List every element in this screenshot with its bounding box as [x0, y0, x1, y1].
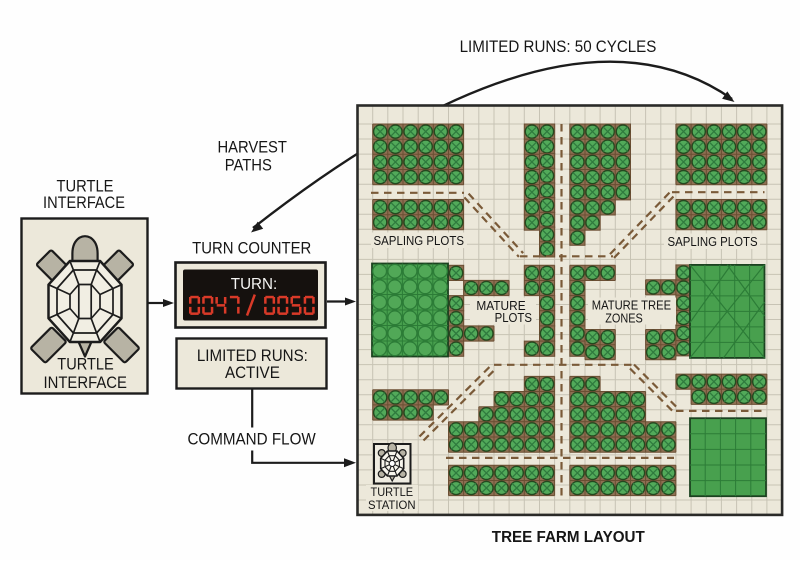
svg-text:SAPLING PLOTS: SAPLING PLOTS	[374, 234, 465, 248]
svg-text:TURTLE: TURTLE	[57, 356, 114, 374]
svg-text:HARVEST: HARVEST	[217, 139, 287, 157]
svg-text:TREE FARM LAYOUT: TREE FARM LAYOUT	[492, 529, 645, 546]
svg-text:LIMITED RUNS:: LIMITED RUNS:	[197, 347, 308, 365]
svg-text:INTERFACE: INTERFACE	[43, 194, 125, 212]
svg-text:LIMITED RUNS: 50 CYCLES: LIMITED RUNS: 50 CYCLES	[460, 38, 657, 56]
svg-text:TURN:: TURN:	[231, 276, 277, 293]
svg-text:SAPLING PLOTS: SAPLING PLOTS	[668, 235, 758, 249]
svg-text:ZONES: ZONES	[605, 312, 643, 326]
svg-text:INTERFACE: INTERFACE	[43, 374, 127, 392]
svg-text:COMMAND FLOW: COMMAND FLOW	[187, 430, 316, 448]
svg-text:MATURE TREE: MATURE TREE	[592, 298, 671, 312]
svg-text:STATION: STATION	[368, 500, 416, 512]
svg-text:ACTIVE: ACTIVE	[225, 364, 280, 382]
svg-text:TURTLE: TURTLE	[57, 177, 114, 195]
svg-text:PATHS: PATHS	[225, 156, 272, 174]
svg-text:TURTLE: TURTLE	[371, 487, 414, 499]
svg-text:TURN COUNTER: TURN COUNTER	[192, 240, 311, 258]
svg-text:PLOTS: PLOTS	[495, 311, 532, 325]
